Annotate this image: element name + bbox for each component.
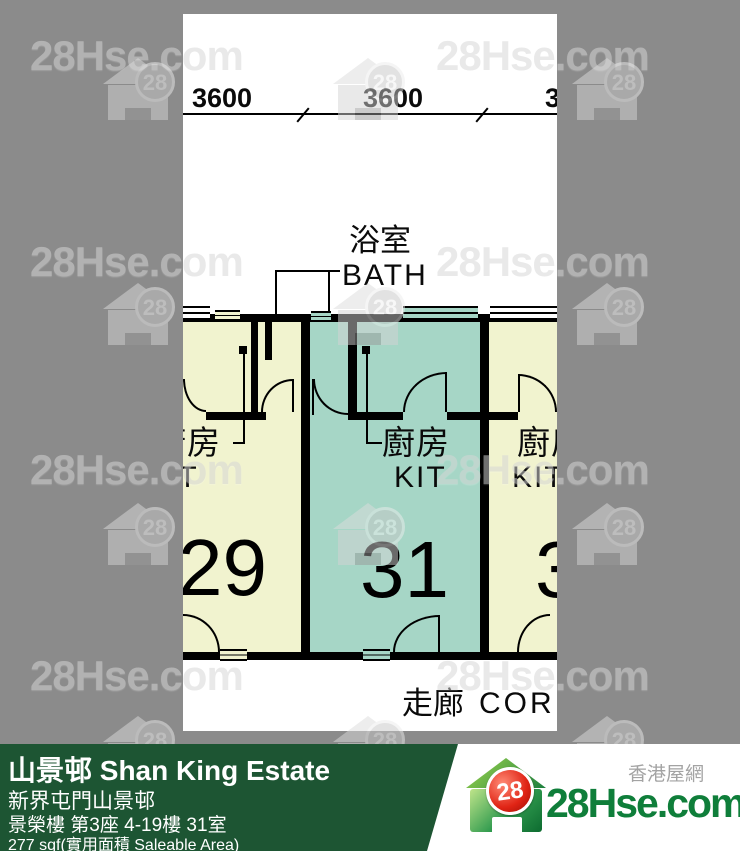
watermark-house-door	[125, 333, 151, 345]
watermark-house-icon: 28	[103, 58, 173, 122]
watermark-house-roof-icon	[572, 503, 642, 529]
kitchen-31-wall	[357, 412, 403, 420]
watermark-house-icon: 28	[572, 503, 642, 567]
site-name: 28Hse.com	[546, 780, 740, 827]
kitchen-33-label-en: KIT	[512, 462, 557, 494]
door-leaf	[438, 615, 440, 652]
house-door-icon	[492, 817, 522, 832]
corridor-label-en: CORRIDOR	[479, 688, 557, 720]
window	[403, 306, 478, 320]
watermark-house-door	[594, 108, 620, 120]
watermark-28-badge: 28	[604, 507, 644, 547]
door-leaf	[312, 379, 314, 415]
watermark-house-body	[108, 85, 168, 120]
window	[311, 311, 331, 322]
kitchen-33-wall	[488, 412, 518, 420]
watermark-house-body	[577, 310, 637, 345]
bath-leader-line	[276, 270, 340, 272]
watermark-house-body	[577, 85, 637, 120]
kitchen-33-label-zh: 廚房	[517, 426, 557, 461]
watermark-house-roof-icon	[572, 716, 642, 742]
window	[215, 310, 240, 321]
unit-number-31: 31	[360, 530, 449, 610]
kitchen-leader-marker	[239, 346, 247, 354]
watermark-house-body	[108, 310, 168, 345]
kitchen-29-label-zh: 廚房	[183, 426, 221, 461]
bath-29-wall	[251, 320, 258, 420]
door-leaf	[518, 374, 520, 412]
watermark-house-body	[108, 530, 168, 565]
watermark-28-badge: 28	[604, 287, 644, 327]
dimension-tick	[475, 107, 488, 122]
window	[363, 649, 390, 661]
dimension-label: 3600	[363, 84, 423, 112]
watermark-house-door	[594, 333, 620, 345]
kitchen-leader-line	[367, 442, 382, 444]
bath-label-zh: 浴室	[349, 225, 411, 258]
door-leaf	[445, 372, 447, 412]
watermark-house-door	[125, 553, 151, 565]
kitchen-leader-line	[233, 442, 245, 444]
watermark-house-icon: 28	[103, 503, 173, 567]
watermark-28-badge: 28	[135, 507, 175, 547]
window	[490, 306, 557, 320]
watermark-28-badge: 28	[604, 62, 644, 102]
kitchen-31-label-en: KIT	[394, 462, 447, 494]
watermark-house-door	[594, 553, 620, 565]
dimension-label: 3600	[192, 84, 252, 112]
info-bar: 山景邨 Shan King Estate 新界屯門山景邨 景榮樓 第3座 4-1…	[0, 744, 740, 851]
kitchen-29-wall	[206, 412, 266, 420]
watermark-house-roof-icon	[103, 58, 173, 84]
bath-31-wall	[348, 320, 357, 420]
watermark-house-body	[577, 530, 637, 565]
watermark-house-icon: 28	[572, 283, 642, 347]
floor-plan-sheet: 3600 3600 3600 浴室 BATH	[183, 14, 557, 731]
dimension-tick	[296, 107, 309, 122]
bath-label-en: BATH	[342, 260, 428, 292]
watermark-28-badge: 28	[135, 62, 175, 102]
watermark-house-icon: 28	[103, 283, 173, 347]
watermark-house-roof-icon	[572, 283, 642, 309]
watermark-28-badge: 28	[135, 287, 175, 327]
door-leaf	[292, 379, 294, 412]
unit-number-33: 33	[535, 530, 557, 610]
window	[220, 649, 247, 661]
watermark-house-roof-icon	[103, 283, 173, 309]
kitchen-leader-marker	[362, 346, 370, 354]
estate-area: 277 sqf(實用面積 Saleable Area)	[8, 831, 239, 851]
watermark-house-icon: 28	[572, 58, 642, 122]
corridor-label-zh: 走廊	[402, 688, 464, 721]
site-name-zh: 香港屋網	[628, 759, 704, 786]
kitchen-leader-line	[366, 354, 368, 444]
watermark-house-roof-icon	[103, 503, 173, 529]
unit-number-29: 29	[183, 528, 267, 608]
party-wall-29-31	[301, 314, 310, 660]
kitchen-leader-line	[243, 354, 245, 444]
window	[183, 306, 210, 320]
dimension-label: 3600	[545, 84, 557, 112]
estate-title: 山景邨 Shan King Estate	[8, 749, 330, 789]
watermark-house-roof-icon	[572, 58, 642, 84]
dimension-line	[183, 113, 557, 115]
watermark-house-door	[125, 108, 151, 120]
duct-wall	[265, 320, 272, 360]
page: 3600 3600 3600 浴室 BATH	[0, 0, 740, 851]
brand-logo: 28 28Hse.com 香港屋網	[462, 758, 732, 848]
kitchen-29-label-en: KIT	[183, 462, 199, 494]
kitchen-31-label-zh: 廚房	[382, 426, 450, 461]
party-wall-31-33	[480, 314, 489, 660]
kitchen-31-wall	[447, 412, 480, 420]
watermark-house-roof-icon	[103, 716, 173, 742]
